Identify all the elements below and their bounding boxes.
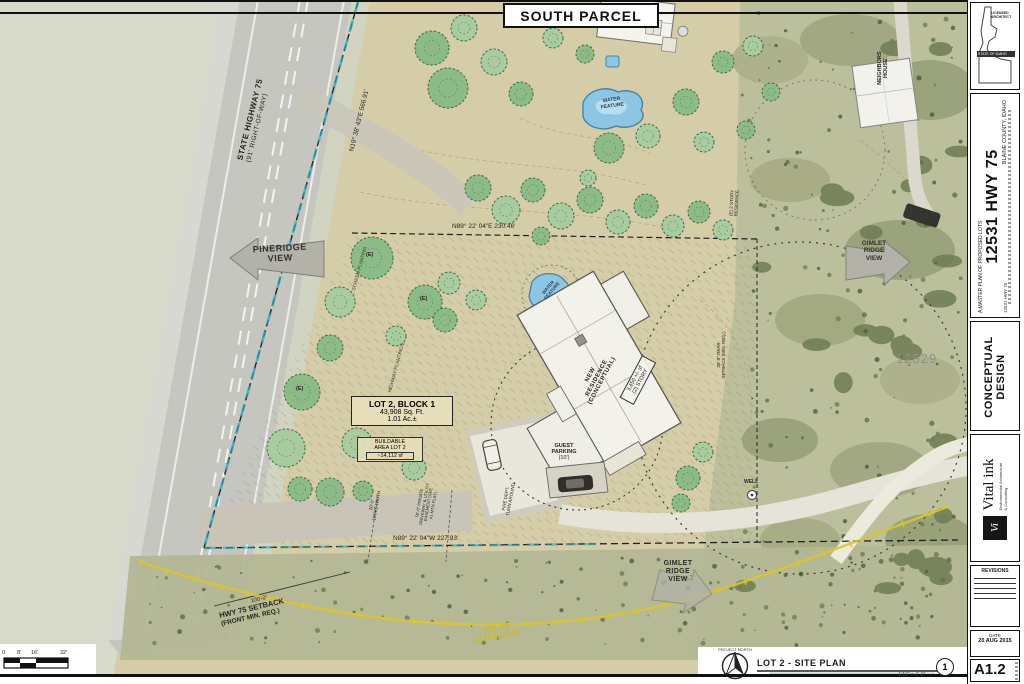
revision-row bbox=[974, 598, 1016, 599]
phase-box: CONCEPTUAL DESIGN bbox=[970, 321, 1020, 431]
title-block: LICENSED ARCHITECT STATE OF IDAHO A MAST… bbox=[967, 0, 1024, 684]
existing-tree-mark-3: (E) bbox=[420, 296, 427, 302]
detail-number-bubble: 1 bbox=[936, 658, 954, 676]
rear-setback-label: 30'-0" REARSETBACK (MIN. REQ.) bbox=[716, 320, 726, 390]
guest-parking-label: GUESTPARKING (10') bbox=[540, 443, 588, 461]
north-bearing-label: N89° 22' 04"E 230.46' bbox=[452, 223, 515, 230]
sheet-number-box: A1.2 bbox=[970, 659, 1020, 682]
gimlet-view-label: GIMLETRIDGEVIEW bbox=[849, 240, 899, 262]
sheet-border-bottom bbox=[0, 674, 1024, 677]
scale-tick-0: 0 bbox=[2, 650, 5, 656]
job-number-microtext bbox=[1015, 662, 1018, 680]
revisions-label: REVISIONS bbox=[971, 568, 1019, 574]
well-symbol bbox=[748, 491, 757, 500]
revision-row bbox=[974, 588, 1016, 589]
scale-tick-8: 8' bbox=[17, 650, 21, 656]
project-north-label: PROJECT NORTH bbox=[710, 648, 760, 652]
revisions-box: REVISIONS bbox=[970, 565, 1020, 627]
sheet-title: SOUTH PARCEL bbox=[503, 3, 659, 28]
scale-bar bbox=[4, 658, 68, 668]
sheet-number: A1.2 bbox=[971, 660, 1019, 678]
scale-tick-32: 32' bbox=[60, 650, 67, 656]
well-label: WELL bbox=[744, 480, 758, 486]
adjacent-address-label: 12529 bbox=[896, 352, 937, 367]
existing-tree-mark-2: (E) bbox=[296, 386, 303, 392]
stamp-text-2: STATE OF IDAHO bbox=[977, 51, 1015, 57]
scale-tick-16: 16' bbox=[31, 650, 38, 656]
lot2-info-box: LOT 2, BLOCK 1 43,908 Sq. Ft. 1.01 Ac.± bbox=[351, 396, 453, 426]
site-plan-graphics bbox=[0, 0, 968, 684]
revision-row bbox=[974, 578, 1016, 579]
firm-name: Vital ink bbox=[981, 459, 998, 511]
stamp-text-1: LICENSED ARCHITECT bbox=[991, 11, 1017, 19]
margin bbox=[0, 676, 968, 684]
drawing-sheet: STATE HIGHWAY 75 (91' RIGHT-OF-WAY) N19°… bbox=[0, 0, 1024, 684]
neighbors-house-label: NEIGHBORSHOUSE bbox=[877, 37, 889, 99]
existing-tree-mark-1: (E) bbox=[366, 252, 373, 258]
revision-row bbox=[974, 583, 1016, 584]
firm-logo-mark: Vi bbox=[983, 516, 1007, 540]
architect-stamp: LICENSED ARCHITECT STATE OF IDAHO bbox=[970, 2, 1020, 90]
drawing-title: LOT 2 - SITE PLAN bbox=[757, 658, 846, 668]
date-box: DATE 20 AUG 2015 bbox=[970, 630, 1020, 657]
sheet-border-top bbox=[0, 0, 1024, 2]
gimlet-view-bottom-label: GIMLETRIDGEVIEW bbox=[648, 560, 708, 583]
buildable-area-box: BUILDABLE AREA LOT 2 ~14,112 sf bbox=[357, 437, 423, 462]
phase-line-1: CONCEPTUAL bbox=[983, 336, 995, 417]
drawing-scale: 1/16" = 1'-0" bbox=[898, 673, 925, 679]
revision-row bbox=[974, 593, 1016, 594]
site-plan-area: STATE HIGHWAY 75 (91' RIGHT-OF-WAY) N19°… bbox=[0, 0, 968, 684]
project-title: 12531 HWY 75 bbox=[984, 149, 1002, 263]
fine-print bbox=[1008, 109, 1011, 305]
phase-line-2: DESIGN bbox=[995, 354, 1007, 399]
firm-box: Vi Vital ink Environmental Architecture … bbox=[970, 434, 1020, 562]
project-info-box: A MASTER PLAN OF PROPOSED LOTS 12531 HWY… bbox=[970, 93, 1020, 318]
date-value: 20 AUG 2015 bbox=[971, 638, 1019, 644]
plan-frame-top bbox=[0, 12, 968, 14]
firm-tagline-2: & Consulting bbox=[1003, 459, 1008, 511]
